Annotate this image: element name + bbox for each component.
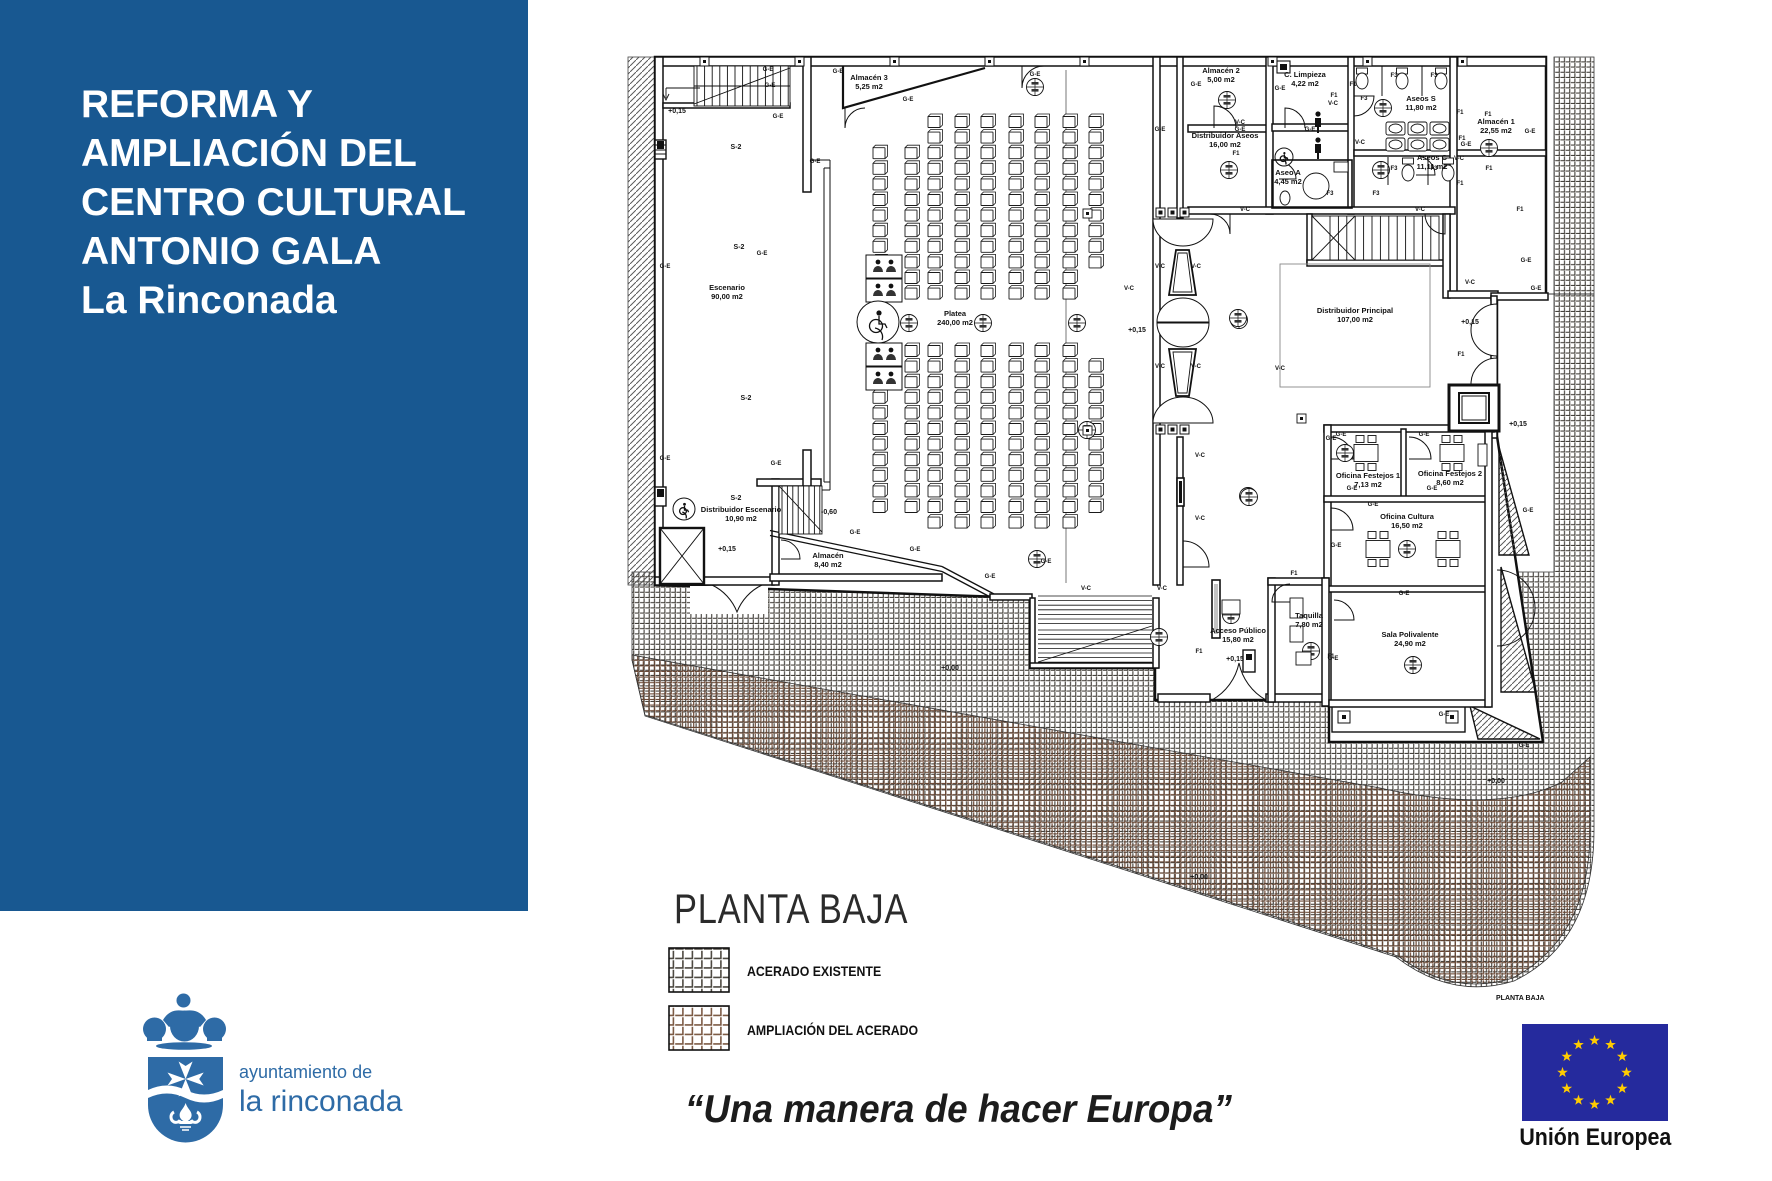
svg-text:+0,00: +0,00 bbox=[941, 665, 959, 672]
svg-text:S-2: S-2 bbox=[731, 495, 742, 502]
svg-text:Aseos C: Aseos C bbox=[1417, 153, 1448, 162]
svg-text:F1: F1 bbox=[1290, 571, 1298, 577]
svg-text:F1: F1 bbox=[1456, 110, 1464, 116]
svg-text:V-C: V-C bbox=[1191, 364, 1202, 370]
svg-text:G-E: G-E bbox=[1523, 508, 1534, 514]
svg-text:G-E: G-E bbox=[763, 67, 774, 73]
svg-text:F1: F1 bbox=[1457, 352, 1465, 358]
svg-text:F1: F1 bbox=[1330, 93, 1338, 99]
svg-text:G-E: G-E bbox=[1331, 543, 1342, 549]
svg-text:Oficina Festejos 2: Oficina Festejos 2 bbox=[1418, 469, 1482, 478]
svg-text:G-E: G-E bbox=[903, 97, 914, 103]
svg-text:Almacén: Almacén bbox=[812, 551, 844, 560]
svg-text:V-C: V-C bbox=[1415, 207, 1426, 213]
svg-text:7,80 m2: 7,80 m2 bbox=[1295, 620, 1323, 629]
svg-text:G-E: G-E bbox=[985, 574, 996, 580]
svg-text:G-E: G-E bbox=[765, 83, 776, 89]
svg-text:G-E: G-E bbox=[660, 456, 671, 462]
svg-text:Almacén 3: Almacén 3 bbox=[850, 73, 888, 82]
svg-text:G-E: G-E bbox=[1275, 86, 1286, 92]
svg-text:V-C: V-C bbox=[1081, 586, 1092, 592]
svg-text:Distribuidor Escenario: Distribuidor Escenario bbox=[701, 505, 782, 514]
svg-text:F1: F1 bbox=[1458, 136, 1466, 142]
svg-text:F3: F3 bbox=[1390, 73, 1398, 79]
svg-text:F3: F3 bbox=[1372, 191, 1380, 197]
svg-text:Distribuidor Aseos: Distribuidor Aseos bbox=[1192, 131, 1259, 140]
svg-text:G-E: G-E bbox=[1419, 432, 1430, 438]
svg-text:-0,60: -0,60 bbox=[821, 509, 837, 516]
svg-text:G-E: G-E bbox=[1519, 743, 1530, 749]
svg-text:G-E: G-E bbox=[1461, 142, 1472, 148]
svg-text:+0,00: +0,00 bbox=[1190, 874, 1208, 881]
svg-text:S-2: S-2 bbox=[731, 144, 742, 151]
svg-text:7,13 m2: 7,13 m2 bbox=[1354, 480, 1382, 489]
svg-text:Almacén 2: Almacén 2 bbox=[1202, 66, 1240, 75]
svg-text:G-E: G-E bbox=[1427, 486, 1438, 492]
svg-text:G-E: G-E bbox=[773, 114, 784, 120]
svg-text:+0,15: +0,15 bbox=[1509, 421, 1527, 428]
svg-text:+0,15: +0,15 bbox=[1128, 327, 1146, 334]
svg-text:4,45 m2: 4,45 m2 bbox=[1274, 177, 1302, 186]
svg-text:G-E: G-E bbox=[1521, 258, 1532, 264]
svg-text:F3: F3 bbox=[1360, 96, 1368, 102]
svg-text:107,00 m2: 107,00 m2 bbox=[1337, 315, 1373, 324]
svg-text:G-E: G-E bbox=[1041, 559, 1052, 565]
svg-text:G-E: G-E bbox=[1191, 82, 1202, 88]
svg-text:V-C: V-C bbox=[1465, 280, 1476, 286]
svg-text:Taquilla: Taquilla bbox=[1295, 611, 1324, 620]
svg-text:Aseo A: Aseo A bbox=[1275, 168, 1301, 177]
svg-text:8,40 m2: 8,40 m2 bbox=[814, 560, 842, 569]
svg-text:F3: F3 bbox=[1430, 166, 1438, 172]
svg-text:V-C: V-C bbox=[1191, 264, 1202, 270]
svg-text:V-C: V-C bbox=[1195, 453, 1206, 459]
svg-text:Oficina Cultura: Oficina Cultura bbox=[1380, 512, 1435, 521]
svg-text:22,55 m2: 22,55 m2 bbox=[1480, 126, 1512, 135]
svg-text:G-E: G-E bbox=[1235, 127, 1246, 133]
svg-text:C. Limpieza: C. Limpieza bbox=[1284, 70, 1327, 79]
svg-text:Oficina Festejos 1: Oficina Festejos 1 bbox=[1336, 471, 1400, 480]
svg-text:16,50 m2: 16,50 m2 bbox=[1391, 521, 1423, 530]
svg-text:90,00 m2: 90,00 m2 bbox=[711, 292, 743, 301]
svg-text:G-E: G-E bbox=[850, 530, 861, 536]
svg-text:+0,15: +0,15 bbox=[1226, 656, 1244, 663]
svg-text:+0,15: +0,15 bbox=[1461, 319, 1479, 326]
svg-text:S-2: S-2 bbox=[734, 244, 745, 251]
svg-text:F3: F3 bbox=[1326, 191, 1334, 197]
svg-text:4,22 m2: 4,22 m2 bbox=[1291, 79, 1319, 88]
svg-text:+0,00: +0,00 bbox=[1487, 778, 1505, 785]
svg-text:+0,15: +0,15 bbox=[718, 546, 736, 553]
svg-text:G-E: G-E bbox=[1439, 712, 1450, 718]
svg-text:+0,15: +0,15 bbox=[668, 108, 686, 115]
svg-text:V-C: V-C bbox=[1155, 264, 1166, 270]
svg-text:V-C: V-C bbox=[1275, 366, 1286, 372]
svg-text:G-E: G-E bbox=[1531, 286, 1542, 292]
svg-text:8,60 m2: 8,60 m2 bbox=[1436, 478, 1464, 487]
svg-text:V-C: V-C bbox=[1355, 140, 1366, 146]
svg-text:F1: F1 bbox=[1516, 207, 1524, 213]
svg-text:F3: F3 bbox=[1390, 166, 1398, 172]
svg-text:V-C: V-C bbox=[1157, 586, 1168, 592]
svg-text:F1: F1 bbox=[1484, 112, 1492, 118]
svg-text:Distribuidor Principal: Distribuidor Principal bbox=[1317, 306, 1393, 315]
svg-text:11,80 m2: 11,80 m2 bbox=[1405, 103, 1436, 112]
svg-text:G-E: G-E bbox=[1305, 127, 1316, 133]
svg-text:G-E: G-E bbox=[1336, 432, 1347, 438]
svg-text:S-2: S-2 bbox=[741, 395, 752, 402]
svg-text:V-C: V-C bbox=[1240, 207, 1251, 213]
svg-text:G-E: G-E bbox=[1347, 486, 1358, 492]
svg-text:Aseos S: Aseos S bbox=[1406, 94, 1436, 103]
svg-text:G-E: G-E bbox=[910, 547, 921, 553]
svg-text:G-E: G-E bbox=[1368, 502, 1379, 508]
svg-text:24,90 m2: 24,90 m2 bbox=[1394, 639, 1426, 648]
svg-text:F1: F1 bbox=[1349, 82, 1357, 88]
svg-text:Acceso Público: Acceso Público bbox=[1210, 626, 1266, 635]
svg-text:G-E: G-E bbox=[771, 461, 782, 467]
svg-text:G-E: G-E bbox=[1525, 129, 1536, 135]
svg-text:G-E: G-E bbox=[1399, 591, 1410, 597]
svg-text:F1: F1 bbox=[1232, 151, 1240, 157]
svg-text:G-E: G-E bbox=[810, 159, 821, 165]
svg-text:G-E: G-E bbox=[757, 251, 768, 257]
svg-text:G-E: G-E bbox=[660, 264, 671, 270]
svg-text:Platea: Platea bbox=[944, 309, 967, 318]
svg-text:G-E: G-E bbox=[1030, 72, 1041, 78]
svg-text:F1: F1 bbox=[1485, 166, 1493, 172]
svg-text:G-E: G-E bbox=[1326, 436, 1337, 442]
svg-text:F1: F1 bbox=[1327, 654, 1335, 660]
svg-text:5,00 m2: 5,00 m2 bbox=[1207, 75, 1235, 84]
svg-text:F1: F1 bbox=[1456, 181, 1464, 187]
svg-text:V-C: V-C bbox=[1235, 120, 1246, 126]
svg-text:Escenario: Escenario bbox=[709, 283, 745, 292]
svg-text:10,90 m2: 10,90 m2 bbox=[725, 514, 757, 523]
svg-text:F1: F1 bbox=[1195, 649, 1203, 655]
svg-text:Almacén 1: Almacén 1 bbox=[1477, 117, 1515, 126]
svg-text:V-C: V-C bbox=[1195, 516, 1206, 522]
svg-text:V-C: V-C bbox=[1155, 364, 1166, 370]
svg-text:V-C: V-C bbox=[1328, 101, 1339, 107]
svg-text:5,25 m2: 5,25 m2 bbox=[855, 82, 883, 91]
svg-text:F3: F3 bbox=[1430, 73, 1438, 79]
svg-text:V-C: V-C bbox=[1454, 156, 1465, 162]
svg-text:16,00 m2: 16,00 m2 bbox=[1209, 140, 1241, 149]
svg-text:240,00 m2: 240,00 m2 bbox=[937, 318, 973, 327]
svg-text:Sala Polivalente: Sala Polivalente bbox=[1381, 630, 1438, 639]
svg-text:G-E: G-E bbox=[1155, 127, 1166, 133]
svg-text:G-E: G-E bbox=[833, 69, 844, 75]
svg-text:V-C: V-C bbox=[1124, 286, 1135, 292]
svg-text:15,80 m2: 15,80 m2 bbox=[1222, 635, 1254, 644]
